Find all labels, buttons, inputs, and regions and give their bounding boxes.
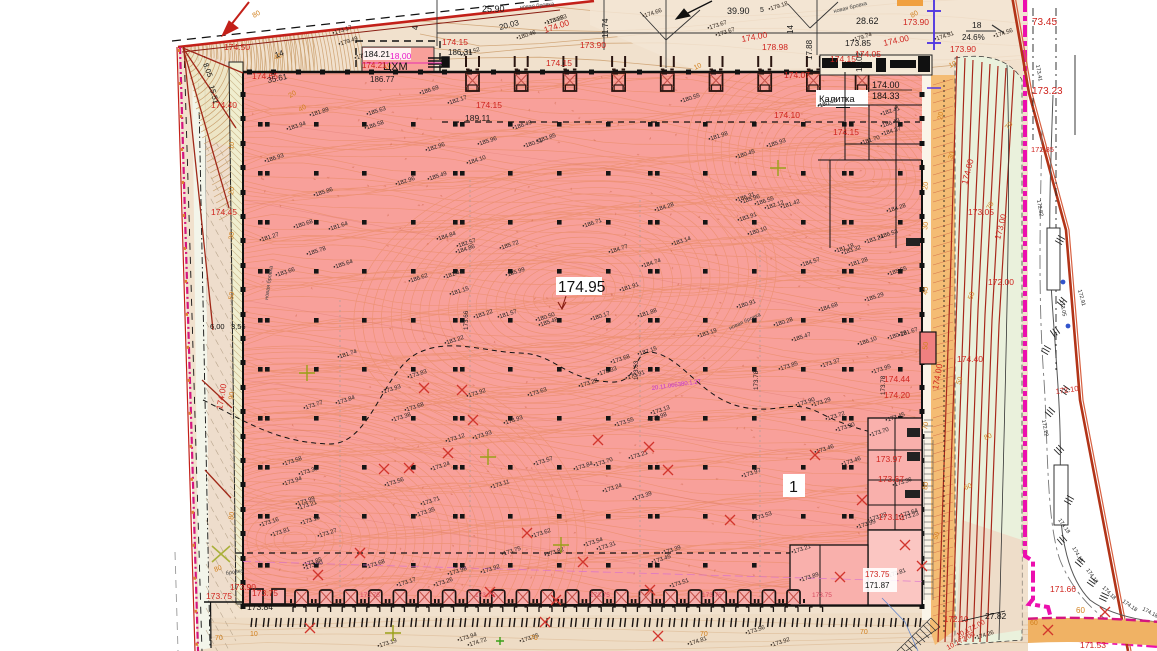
svg-text:10: 10	[228, 141, 236, 150]
svg-text:173.23: 173.23	[1032, 86, 1063, 97]
svg-text:10: 10	[250, 631, 258, 638]
svg-text:174.05: 174.05	[855, 49, 881, 59]
svg-text:173.90: 173.90	[903, 17, 929, 27]
svg-text:30: 30	[228, 231, 236, 240]
svg-text:173.75: 173.75	[812, 592, 832, 599]
svg-text:174.50: 174.50	[224, 42, 250, 52]
svg-text:70: 70	[700, 631, 708, 638]
svg-text:28.62: 28.62	[856, 16, 879, 26]
svg-text:1: 1	[789, 479, 798, 496]
svg-text:50: 50	[228, 291, 236, 300]
svg-text:25.90: 25.90	[482, 4, 505, 14]
svg-text:173.66: 173.66	[463, 310, 470, 330]
svg-text:27.82: 27.82	[985, 611, 1007, 621]
svg-text:172.00: 172.00	[988, 277, 1014, 287]
svg-text:173.67: 173.67	[878, 474, 904, 484]
svg-text:90: 90	[228, 391, 236, 400]
svg-text:173.75: 173.75	[590, 592, 610, 599]
svg-text:60: 60	[1030, 620, 1038, 627]
svg-text:80: 80	[228, 511, 236, 520]
svg-text:174.15: 174.15	[442, 37, 468, 47]
svg-text:184.33: 184.33	[872, 91, 900, 101]
svg-text:173.75: 173.75	[252, 588, 278, 598]
svg-text:173.90: 173.90	[950, 44, 976, 54]
svg-text:17.88: 17.88	[805, 39, 814, 60]
svg-text:174.00: 174.00	[872, 80, 900, 90]
svg-text:24.6%: 24.6%	[962, 33, 985, 42]
svg-text:20: 20	[937, 111, 945, 120]
svg-text:184.21: 184.21	[364, 49, 390, 59]
svg-text:174.15: 174.15	[833, 127, 859, 137]
svg-text:173.10: 173.10	[878, 512, 904, 522]
svg-text:173.75: 173.75	[475, 592, 495, 599]
svg-text:70: 70	[922, 421, 930, 430]
svg-text:20: 20	[922, 181, 930, 190]
svg-text:171.87: 171.87	[865, 581, 890, 590]
svg-text:173.78: 173.78	[753, 370, 760, 390]
svg-text:174.15: 174.15	[830, 54, 856, 64]
svg-text:172.85: 172.85	[1031, 145, 1054, 154]
svg-text:70: 70	[860, 629, 868, 636]
svg-text:172.10: 172.10	[944, 615, 969, 624]
svg-text:50: 50	[922, 341, 930, 350]
svg-text:186.31: 186.31	[448, 48, 473, 57]
svg-text:70: 70	[530, 635, 538, 642]
svg-text:189.11: 189.11	[465, 113, 491, 123]
svg-text:80: 80	[922, 481, 930, 490]
svg-text:173.75: 173.75	[865, 570, 890, 579]
svg-text:171.53: 171.53	[1080, 640, 1106, 650]
svg-text:173.75: 173.75	[702, 592, 722, 599]
svg-text:173.85: 173.85	[845, 38, 871, 48]
svg-text:30: 30	[922, 221, 930, 230]
svg-text:40: 40	[922, 286, 930, 295]
svg-text:173.05: 173.05	[968, 207, 994, 217]
svg-text:174.10: 174.10	[774, 110, 800, 120]
svg-text:73.45: 73.45	[1032, 17, 1057, 28]
svg-text:174.45: 174.45	[211, 207, 237, 217]
svg-text:4: 4	[411, 25, 420, 30]
svg-text:174.40: 174.40	[957, 354, 983, 364]
svg-text:174.15: 174.15	[546, 58, 572, 68]
svg-text:174.20: 174.20	[884, 390, 910, 400]
svg-text:173.75: 173.75	[206, 591, 232, 601]
svg-text:3,56: 3,56	[231, 322, 246, 331]
svg-text:171.66: 171.66	[1050, 584, 1076, 594]
svg-text:174.44: 174.44	[884, 374, 910, 384]
svg-text:ЦХМ: ЦХМ	[383, 61, 408, 73]
svg-text:70: 70	[215, 635, 223, 642]
svg-text:11.74: 11.74	[601, 18, 610, 38]
svg-text:186.77: 186.77	[370, 75, 395, 84]
svg-text:60: 60	[1076, 606, 1085, 615]
svg-text:20: 20	[228, 186, 236, 195]
svg-text:173.90: 173.90	[580, 40, 606, 50]
svg-text:173.97: 173.97	[876, 454, 902, 464]
svg-text:173.84: 173.84	[247, 602, 273, 612]
svg-text:6,00: 6,00	[210, 322, 225, 331]
svg-text:39.90: 39.90	[727, 6, 750, 16]
svg-text:18: 18	[972, 20, 982, 30]
svg-text:173.75: 173.75	[360, 592, 380, 599]
svg-text:174.21: 174.21	[362, 61, 387, 70]
svg-text:14: 14	[786, 25, 795, 34]
svg-text:5: 5	[760, 7, 764, 14]
svg-text:18,00: 18,00	[390, 51, 412, 61]
svg-text:178.98: 178.98	[762, 42, 788, 52]
svg-text:174.15: 174.15	[476, 100, 502, 110]
svg-text:174.95: 174.95	[558, 279, 605, 296]
svg-text:174.07: 174.07	[784, 70, 810, 80]
